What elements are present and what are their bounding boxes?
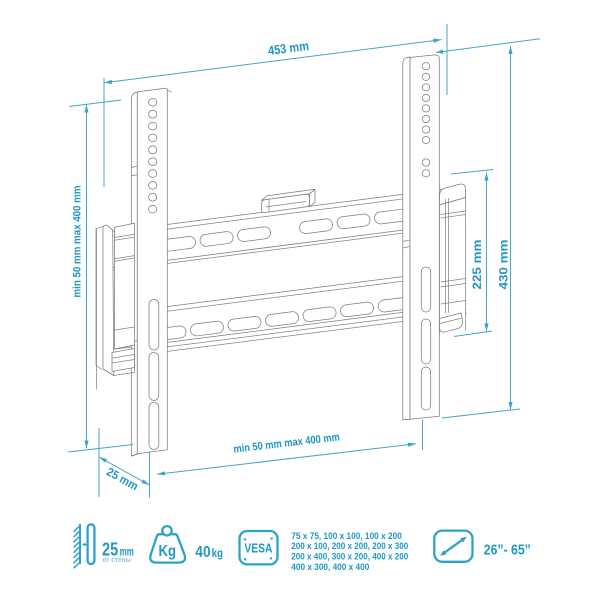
svg-text:400 x 300, 400 x 400: 400 x 300, 400 x 400 — [291, 562, 369, 573]
svg-text:25 mm: 25 mm — [104, 465, 141, 494]
svg-text:kg: kg — [212, 548, 223, 560]
svg-text:430 mm: 430 mm — [499, 240, 511, 290]
svg-text:200 x 100, 200 x 200, 200 x 30: 200 x 100, 200 x 200, 200 x 300 — [291, 541, 408, 552]
svg-text:Kg: Kg — [159, 543, 177, 560]
svg-text:VESA: VESA — [244, 541, 272, 556]
svg-text:min 50 mm max 400 mm: min 50 mm max 400 mm — [233, 431, 341, 455]
svg-text:26”- 65”: 26”- 65” — [484, 542, 531, 559]
svg-text:min 50 mm max 400 mm: min 50 mm max 400 mm — [72, 185, 84, 297]
svg-text:40: 40 — [195, 544, 210, 561]
svg-text:от стены: от стены — [103, 555, 132, 564]
svg-text:453 mm: 453 mm — [267, 38, 310, 58]
svg-text:225 mm: 225 mm — [472, 240, 484, 290]
